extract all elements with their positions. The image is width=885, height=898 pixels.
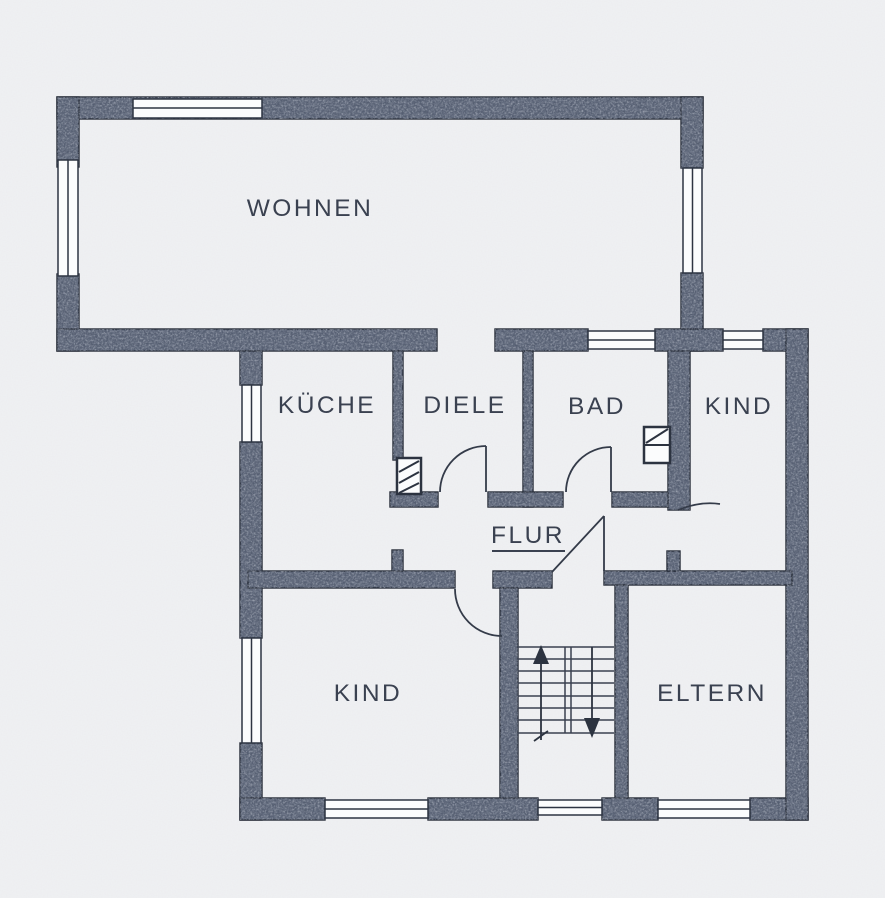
window-kind-ug-south bbox=[325, 800, 428, 818]
room-bad bbox=[533, 351, 668, 492]
room-label-kind-ug: KIND bbox=[334, 680, 403, 707]
room-label-diele: DIELE bbox=[423, 392, 506, 419]
window-wohnen-west bbox=[58, 160, 78, 276]
stairwell bbox=[518, 588, 615, 798]
room-label-kind-og: KIND bbox=[705, 393, 774, 420]
floor-plan-page: WOHNEN KÜCHE DIELE BAD KIND FLUR KIND EL… bbox=[0, 0, 885, 898]
room-kind-og bbox=[690, 351, 786, 507]
room-label-flur: FLUR bbox=[491, 522, 565, 549]
room-kueche bbox=[262, 351, 393, 571]
window-wohnen-east bbox=[683, 168, 702, 273]
window-kind-ug-west bbox=[242, 638, 261, 743]
window-stairwell-south bbox=[538, 800, 602, 815]
window-kind-og-north bbox=[723, 331, 763, 349]
room-diele bbox=[403, 351, 523, 492]
room-label-kueche: KÜCHE bbox=[278, 392, 376, 419]
window-eltern-south bbox=[658, 800, 750, 818]
window-bad-interior bbox=[588, 331, 655, 349]
floor-plan-canvas: WOHNEN KÜCHE DIELE BAD KIND FLUR KIND EL… bbox=[0, 0, 885, 898]
window-kueche-west bbox=[242, 385, 261, 442]
window-wohnen-north bbox=[133, 99, 262, 118]
room-label-wohnen: WOHNEN bbox=[247, 195, 374, 222]
room-label-bad: BAD bbox=[568, 393, 626, 420]
room-label-eltern: ELTERN bbox=[657, 680, 767, 707]
room-wohnen bbox=[79, 119, 681, 329]
